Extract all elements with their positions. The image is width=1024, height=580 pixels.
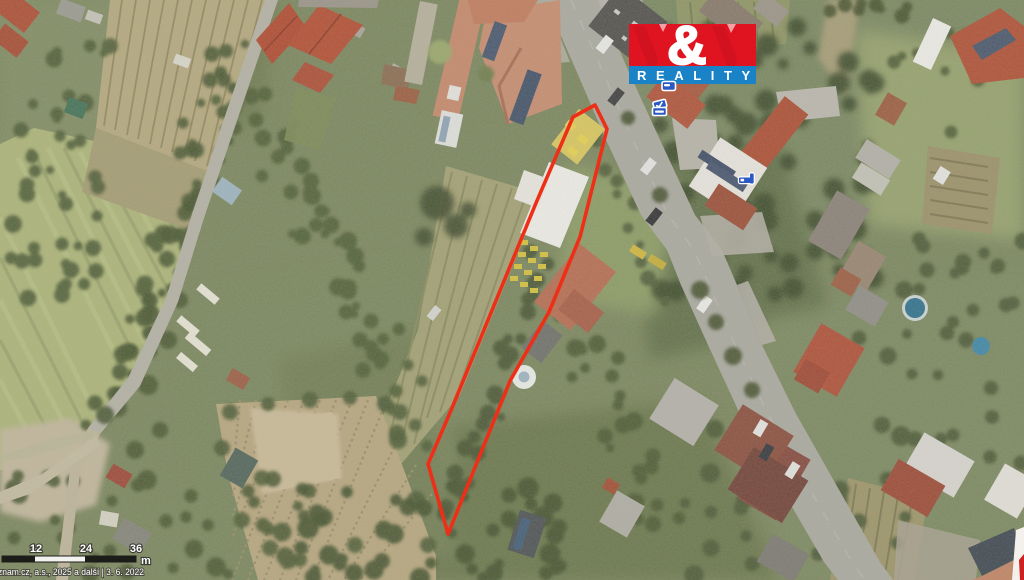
svg-text:36: 36: [130, 543, 142, 555]
svg-text:12: 12: [30, 543, 42, 555]
svg-text:m: m: [141, 555, 151, 567]
svg-text:REALITY: REALITY: [637, 68, 760, 83]
svg-text:znam.cz, a.s., 2025 a další |: znam.cz, a.s., 2025 a další | 3. 6. 2022: [0, 567, 144, 578]
svg-text:24: 24: [80, 543, 93, 555]
